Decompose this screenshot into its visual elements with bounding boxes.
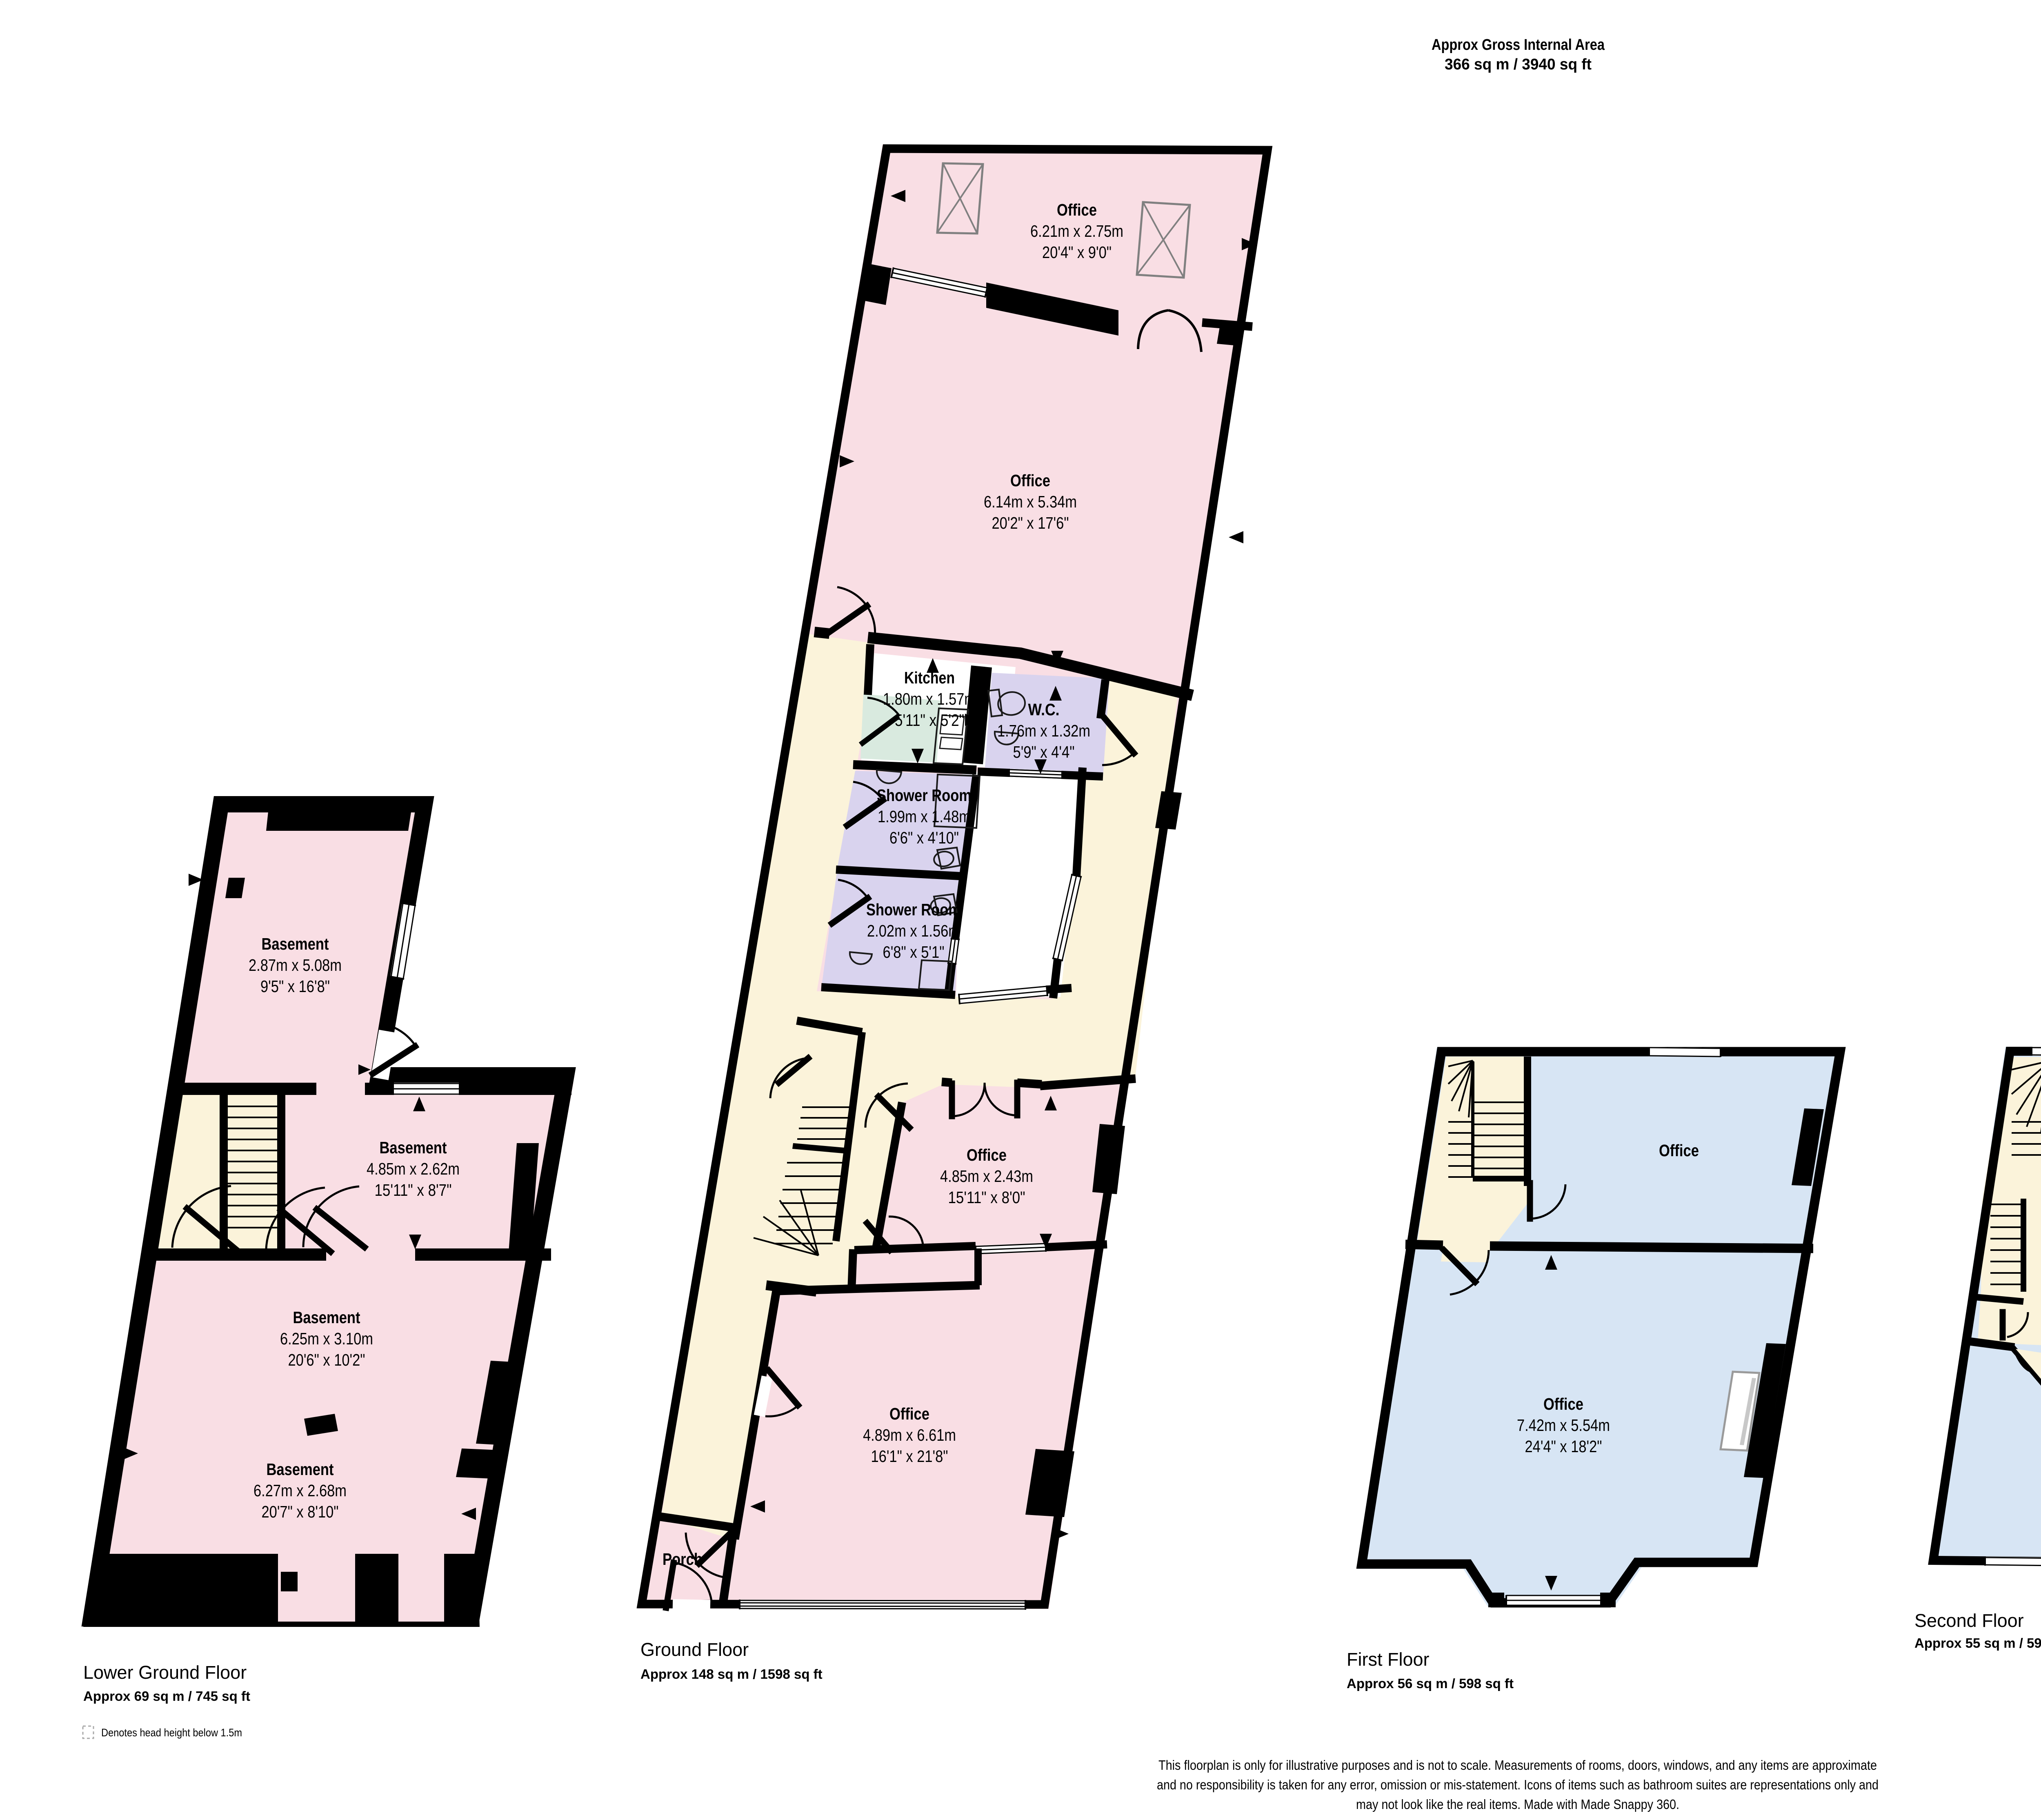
- svg-text:4.85m x 2.62m: 4.85m x 2.62m: [367, 1159, 460, 1178]
- svg-text:20'7" x 8'10": 20'7" x 8'10": [262, 1502, 339, 1521]
- svg-text:6'6" x 4'10": 6'6" x 4'10": [889, 828, 959, 847]
- svg-text:may not look like the real ite: may not look like the real items. Made w…: [1356, 1797, 1679, 1812]
- svg-text:and no responsibility is taken: and no responsibility is taken for any e…: [1157, 1777, 1879, 1792]
- svg-text:4.89m x 6.61m: 4.89m x 6.61m: [863, 1426, 956, 1444]
- svg-text:Approx 55 sq m / 595 sq ft: Approx 55 sq m / 595 sq ft: [1914, 1635, 2041, 1651]
- svg-text:Porch: Porch: [663, 1550, 703, 1569]
- svg-text:15'11" x 8'0": 15'11" x 8'0": [948, 1188, 1025, 1207]
- svg-text:Office: Office: [1010, 471, 1050, 490]
- svg-text:6.25m x 3.10m: 6.25m x 3.10m: [280, 1329, 373, 1348]
- svg-text:Basement: Basement: [262, 934, 329, 953]
- svg-text:20'2" x 17'6": 20'2" x 17'6": [992, 514, 1069, 532]
- svg-text:1.99m x 1.48m: 1.99m x 1.48m: [878, 807, 971, 826]
- svg-text:First Floor: First Floor: [1347, 1649, 1430, 1670]
- svg-text:Basement: Basement: [267, 1460, 334, 1479]
- svg-text:6.21m x 2.75m: 6.21m x 2.75m: [1030, 222, 1123, 240]
- svg-text:1.80m x 1.57m: 1.80m x 1.57m: [883, 690, 976, 708]
- svg-text:Approx Gross Internal Area: Approx Gross Internal Area: [1432, 36, 1605, 53]
- svg-text:Approx 56 sq m / 598 sq ft: Approx 56 sq m / 598 sq ft: [1347, 1676, 1514, 1691]
- svg-text:Office: Office: [889, 1404, 929, 1423]
- svg-text:Approx 148 sq m / 1598 sq ft: Approx 148 sq m / 1598 sq ft: [640, 1666, 823, 1682]
- svg-text:6'8" x 5'1": 6'8" x 5'1": [883, 943, 945, 961]
- svg-text:20'4" x 9'0": 20'4" x 9'0": [1042, 243, 1112, 262]
- svg-text:Office: Office: [1543, 1395, 1583, 1413]
- svg-text:15'11" x 8'7": 15'11" x 8'7": [375, 1181, 452, 1199]
- svg-text:Second Floor: Second Floor: [1914, 1610, 2024, 1631]
- svg-text:366 sq m / 3940 sq ft: 366 sq m / 3940 sq ft: [1445, 56, 1592, 73]
- svg-text:Office: Office: [967, 1146, 1007, 1164]
- svg-text:24'4" x 18'2": 24'4" x 18'2": [1525, 1437, 1602, 1456]
- svg-text:Shower Room: Shower Room: [866, 900, 961, 919]
- svg-text:W.C.: W.C.: [1028, 700, 1060, 719]
- svg-text:Basement: Basement: [380, 1138, 447, 1157]
- svg-text:9'5" x 16'8": 9'5" x 16'8": [260, 977, 330, 996]
- svg-text:Shower Room: Shower Room: [877, 786, 972, 805]
- svg-text:This floorplan is only for ill: This floorplan is only for illustrative …: [1158, 1758, 1877, 1773]
- svg-text:6.14m x 5.34m: 6.14m x 5.34m: [984, 492, 1077, 511]
- svg-text:Kitchen: Kitchen: [904, 668, 955, 687]
- svg-text:6.27m x 2.68m: 6.27m x 2.68m: [253, 1481, 347, 1500]
- svg-text:1.76m x 1.32m: 1.76m x 1.32m: [997, 721, 1090, 740]
- svg-text:20'6" x 10'2": 20'6" x 10'2": [288, 1351, 365, 1369]
- svg-text:Ground Floor: Ground Floor: [640, 1639, 749, 1660]
- svg-text:2.02m x 1.56m: 2.02m x 1.56m: [867, 921, 960, 940]
- svg-text:Basement: Basement: [293, 1308, 360, 1327]
- svg-text:Office: Office: [1057, 200, 1097, 219]
- svg-text:16'1" x 21'8": 16'1" x 21'8": [871, 1447, 948, 1466]
- svg-text:4.85m x 2.43m: 4.85m x 2.43m: [940, 1167, 1033, 1186]
- svg-text:5'9" x 4'4": 5'9" x 4'4": [1013, 743, 1075, 761]
- svg-text:7.42m x 5.54m: 7.42m x 5.54m: [1517, 1416, 1610, 1435]
- svg-text:2.87m x 5.08m: 2.87m x 5.08m: [249, 956, 342, 975]
- svg-text:Denotes head height below 1.5m: Denotes head height below 1.5m: [101, 1727, 242, 1739]
- svg-text:Approx 69 sq m / 745 sq ft: Approx 69 sq m / 745 sq ft: [83, 1689, 250, 1704]
- svg-text:Office: Office: [1659, 1141, 1699, 1160]
- svg-text:Lower Ground Floor: Lower Ground Floor: [83, 1662, 247, 1683]
- svg-text:5'11" x 5'2": 5'11" x 5'2": [895, 711, 964, 730]
